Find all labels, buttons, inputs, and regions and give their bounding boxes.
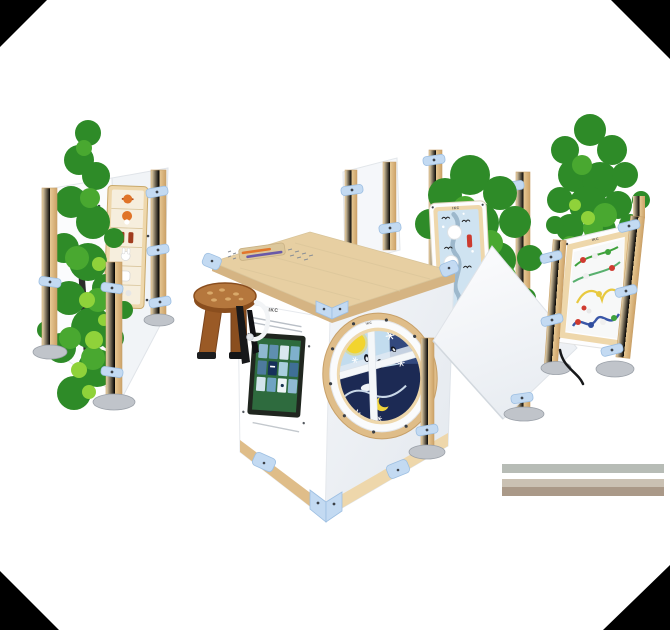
corner-triangle-bottom-right (603, 565, 670, 630)
wood-post (383, 162, 396, 250)
post-foot-disc (33, 345, 67, 359)
red-bird-figure (467, 234, 473, 247)
corner-triangle-top-left (0, 0, 47, 47)
post-foot-disc (409, 445, 445, 459)
floor-stripe (502, 487, 664, 496)
brand-logo: IKC (452, 206, 459, 210)
floor-stripe (502, 464, 664, 473)
corner-triangle-top-right (611, 0, 670, 59)
brand-logo: IKC (268, 307, 278, 314)
seat-top (194, 283, 256, 309)
maze-spinner-disc (447, 225, 462, 240)
post-foot-disc (144, 314, 174, 326)
stool-leg (199, 308, 222, 355)
ear-cup (247, 334, 254, 341)
right-wing: IKC (539, 114, 650, 384)
post-foot-disc (596, 361, 634, 377)
play-corner-product-render: IKC (0, 0, 670, 630)
wood-post (42, 188, 57, 348)
left-wing-panels (33, 120, 174, 410)
wood-post-top (633, 196, 645, 218)
stool-foot (197, 352, 216, 359)
floor-stripes (502, 464, 664, 496)
floor-stripe (502, 479, 664, 487)
post-foot-disc (504, 407, 544, 421)
post-foot-disc (93, 394, 135, 410)
play-desk-unit: IKC IKC (201, 232, 460, 522)
corner-triangle-bottom-left (0, 571, 59, 630)
render-canvas: IKC (0, 0, 670, 630)
